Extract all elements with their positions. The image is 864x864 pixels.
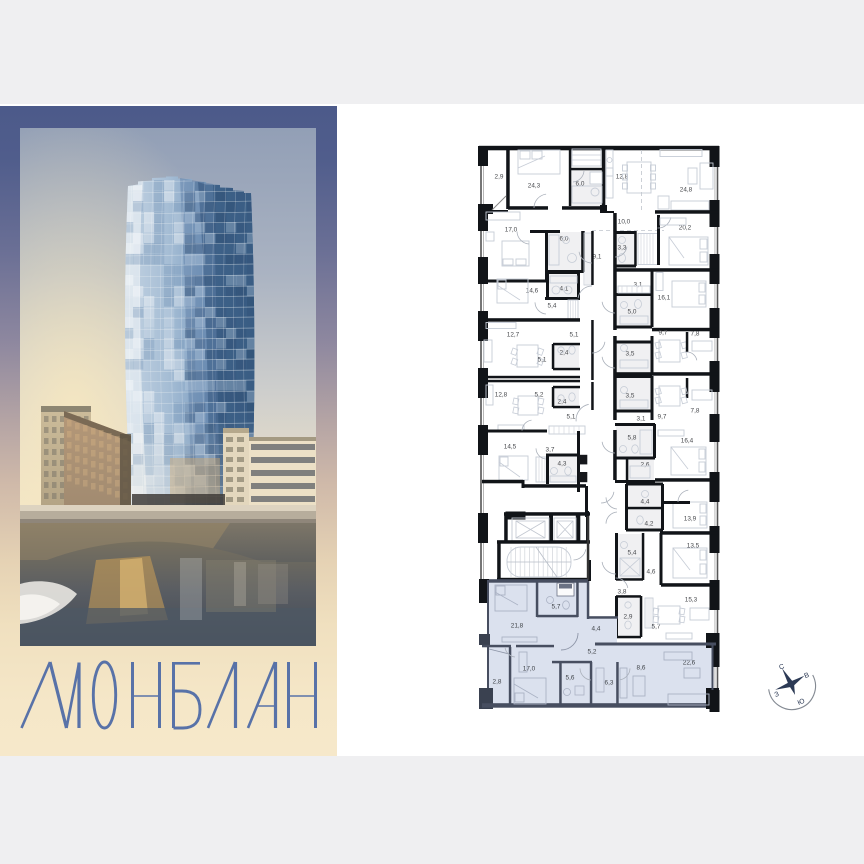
svg-text:В: В: [803, 672, 810, 680]
svg-text:12,8: 12,8: [495, 392, 508, 399]
svg-text:5,2: 5,2: [535, 392, 544, 399]
svg-text:5,7: 5,7: [652, 624, 661, 631]
svg-text:9,7: 9,7: [659, 330, 668, 337]
svg-text:4,2: 4,2: [645, 521, 654, 528]
svg-text:3,8: 3,8: [618, 589, 627, 596]
svg-text:2,8: 2,8: [493, 679, 502, 686]
svg-text:8,6: 8,6: [637, 665, 646, 672]
svg-text:13,5: 13,5: [687, 543, 700, 550]
svg-text:16,1: 16,1: [658, 295, 671, 302]
svg-text:5,0: 5,0: [628, 309, 637, 316]
svg-text:12,7: 12,7: [507, 332, 520, 339]
svg-text:С: С: [778, 663, 785, 671]
svg-text:3,1: 3,1: [637, 416, 646, 423]
svg-text:24,8: 24,8: [680, 187, 693, 194]
svg-text:16,4: 16,4: [681, 438, 694, 445]
svg-text:5,2: 5,2: [588, 649, 597, 656]
svg-text:4,6: 4,6: [647, 569, 656, 576]
svg-text:3,5: 3,5: [626, 351, 635, 358]
svg-text:2,9: 2,9: [624, 614, 633, 621]
svg-text:3,7: 3,7: [546, 447, 555, 454]
svg-text:13,9: 13,9: [684, 516, 697, 523]
svg-text:17,0: 17,0: [505, 227, 518, 234]
svg-text:21,8: 21,8: [511, 623, 524, 630]
svg-text:6,3: 6,3: [605, 680, 614, 687]
svg-text:6,0: 6,0: [576, 181, 585, 188]
svg-text:2,9: 2,9: [495, 174, 504, 181]
svg-text:5,1: 5,1: [538, 357, 547, 364]
svg-text:3,5: 3,5: [626, 393, 635, 400]
svg-text:10,0: 10,0: [618, 219, 631, 226]
svg-text:З: З: [774, 691, 781, 699]
svg-text:20,2: 20,2: [679, 225, 692, 232]
svg-text:5,6: 5,6: [566, 675, 575, 682]
svg-text:2,4: 2,4: [558, 399, 567, 406]
svg-text:5,8: 5,8: [628, 435, 637, 442]
svg-text:14,5: 14,5: [504, 444, 517, 451]
svg-text:4,3: 4,3: [558, 461, 567, 468]
svg-text:2,6: 2,6: [641, 462, 650, 469]
svg-text:4,4: 4,4: [641, 499, 650, 506]
svg-text:5,7: 5,7: [552, 604, 561, 611]
svg-text:7,8: 7,8: [691, 331, 700, 338]
svg-text:22,6: 22,6: [683, 660, 696, 667]
svg-text:15,3: 15,3: [685, 597, 698, 604]
svg-text:7,8: 7,8: [691, 408, 700, 415]
svg-text:3,1: 3,1: [634, 282, 643, 289]
svg-text:5,1: 5,1: [570, 332, 579, 339]
svg-text:9,7: 9,7: [658, 414, 667, 421]
svg-text:5,1: 5,1: [567, 414, 576, 421]
svg-text:5,4: 5,4: [628, 550, 637, 557]
svg-text:4,4: 4,4: [592, 626, 601, 633]
svg-text:9,1: 9,1: [593, 254, 602, 261]
svg-text:24,3: 24,3: [528, 183, 541, 190]
svg-text:5,4: 5,4: [548, 303, 557, 310]
